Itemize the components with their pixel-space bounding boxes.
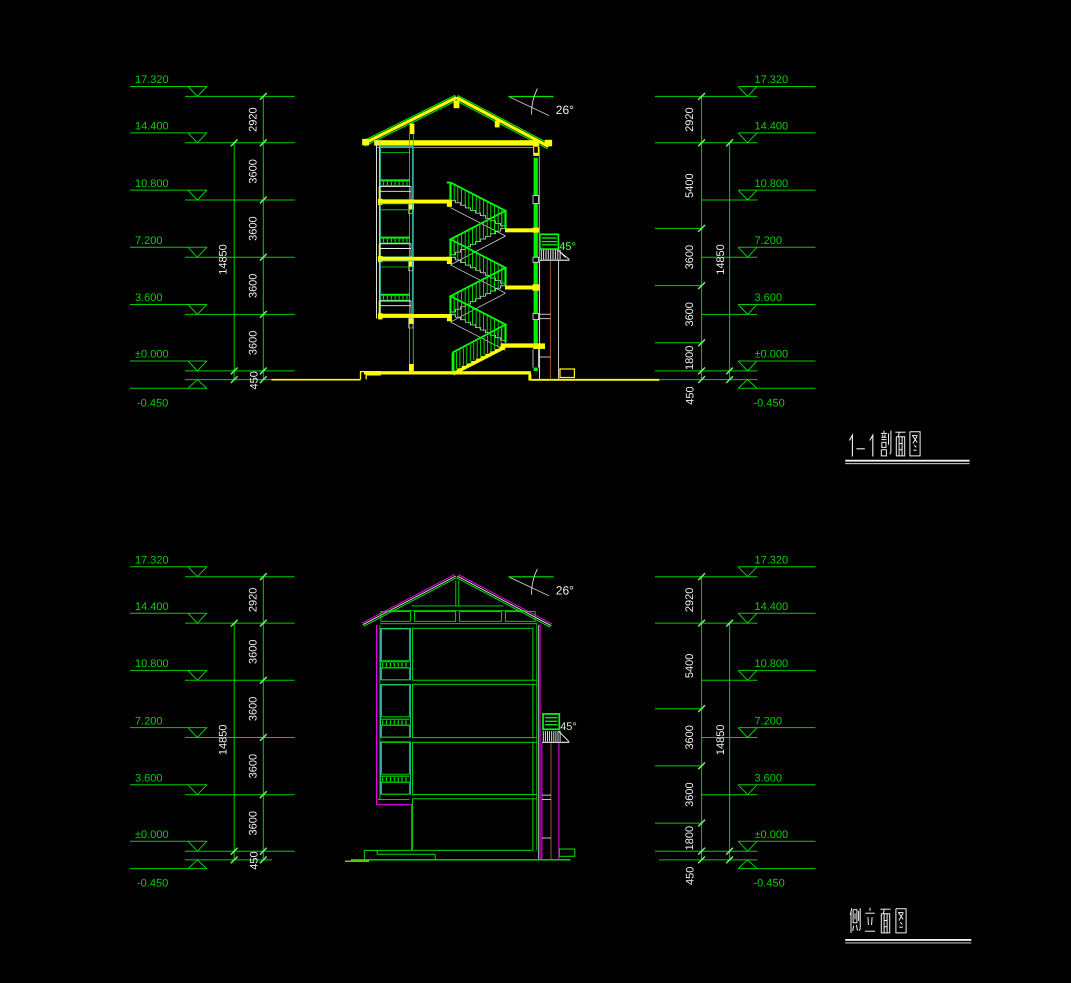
- svg-text:2920: 2920: [684, 107, 696, 131]
- svg-text:10.800: 10.800: [135, 658, 169, 670]
- svg-text:14850: 14850: [715, 244, 727, 275]
- svg-text:±0.000: ±0.000: [135, 349, 169, 361]
- svg-text:±0.000: ±0.000: [755, 829, 789, 841]
- svg-text:17.320: 17.320: [755, 74, 789, 86]
- svg-text:17.320: 17.320: [135, 555, 169, 567]
- svg-text:1800: 1800: [684, 346, 696, 370]
- svg-text:3600: 3600: [248, 159, 260, 183]
- svg-text:5400: 5400: [684, 173, 696, 197]
- svg-text:2920: 2920: [248, 107, 260, 131]
- svg-text:3600: 3600: [684, 302, 696, 326]
- svg-text:-0.450: -0.450: [754, 878, 785, 890]
- svg-text:26°: 26°: [556, 583, 574, 597]
- svg-text:450: 450: [249, 371, 261, 389]
- svg-text:45°: 45°: [560, 721, 577, 733]
- svg-text:10.800: 10.800: [755, 658, 789, 670]
- svg-text:3.600: 3.600: [755, 773, 783, 785]
- svg-text:3600: 3600: [684, 245, 696, 269]
- svg-text:3600: 3600: [248, 216, 260, 240]
- svg-text:14.400: 14.400: [135, 601, 169, 613]
- svg-text:1800: 1800: [684, 826, 696, 850]
- svg-text:7.200: 7.200: [755, 715, 783, 727]
- svg-text:17.320: 17.320: [755, 555, 789, 567]
- svg-text:3600: 3600: [248, 274, 260, 298]
- svg-text:3600: 3600: [684, 782, 696, 806]
- svg-text:14850: 14850: [218, 725, 230, 756]
- svg-text:14.400: 14.400: [755, 121, 789, 133]
- svg-text:45°: 45°: [559, 241, 576, 253]
- svg-text:-0.450: -0.450: [137, 397, 168, 409]
- svg-text:2920: 2920: [684, 588, 696, 612]
- svg-text:7.200: 7.200: [135, 235, 163, 247]
- svg-text:±0.000: ±0.000: [135, 829, 169, 841]
- svg-text:-0.450: -0.450: [754, 397, 785, 409]
- svg-text:10.800: 10.800: [135, 178, 169, 190]
- svg-text:3600: 3600: [248, 697, 260, 721]
- svg-text:14.400: 14.400: [135, 121, 169, 133]
- svg-text:14.400: 14.400: [755, 601, 789, 613]
- svg-text:17.320: 17.320: [135, 74, 169, 86]
- svg-text:3600: 3600: [248, 811, 260, 835]
- svg-text:3600: 3600: [248, 331, 260, 355]
- svg-text:2920: 2920: [248, 588, 260, 612]
- svg-text:±0.000: ±0.000: [755, 349, 789, 361]
- svg-text:14850: 14850: [218, 244, 230, 275]
- svg-text:3600: 3600: [248, 754, 260, 778]
- svg-text:3.600: 3.600: [135, 773, 163, 785]
- svg-text:10.800: 10.800: [755, 178, 789, 190]
- svg-text:3.600: 3.600: [135, 292, 163, 304]
- svg-text:14850: 14850: [715, 725, 727, 756]
- svg-text:450: 450: [685, 386, 697, 404]
- svg-text:450: 450: [685, 867, 697, 885]
- svg-text:-0.450: -0.450: [137, 878, 168, 890]
- svg-text:3.600: 3.600: [755, 292, 783, 304]
- svg-text:5400: 5400: [684, 654, 696, 678]
- svg-text:3600: 3600: [684, 725, 696, 749]
- svg-text:7.200: 7.200: [755, 235, 783, 247]
- svg-text:450: 450: [249, 851, 261, 869]
- svg-text:7.200: 7.200: [135, 715, 163, 727]
- svg-text:3600: 3600: [248, 639, 260, 663]
- svg-text:26°: 26°: [556, 103, 574, 117]
